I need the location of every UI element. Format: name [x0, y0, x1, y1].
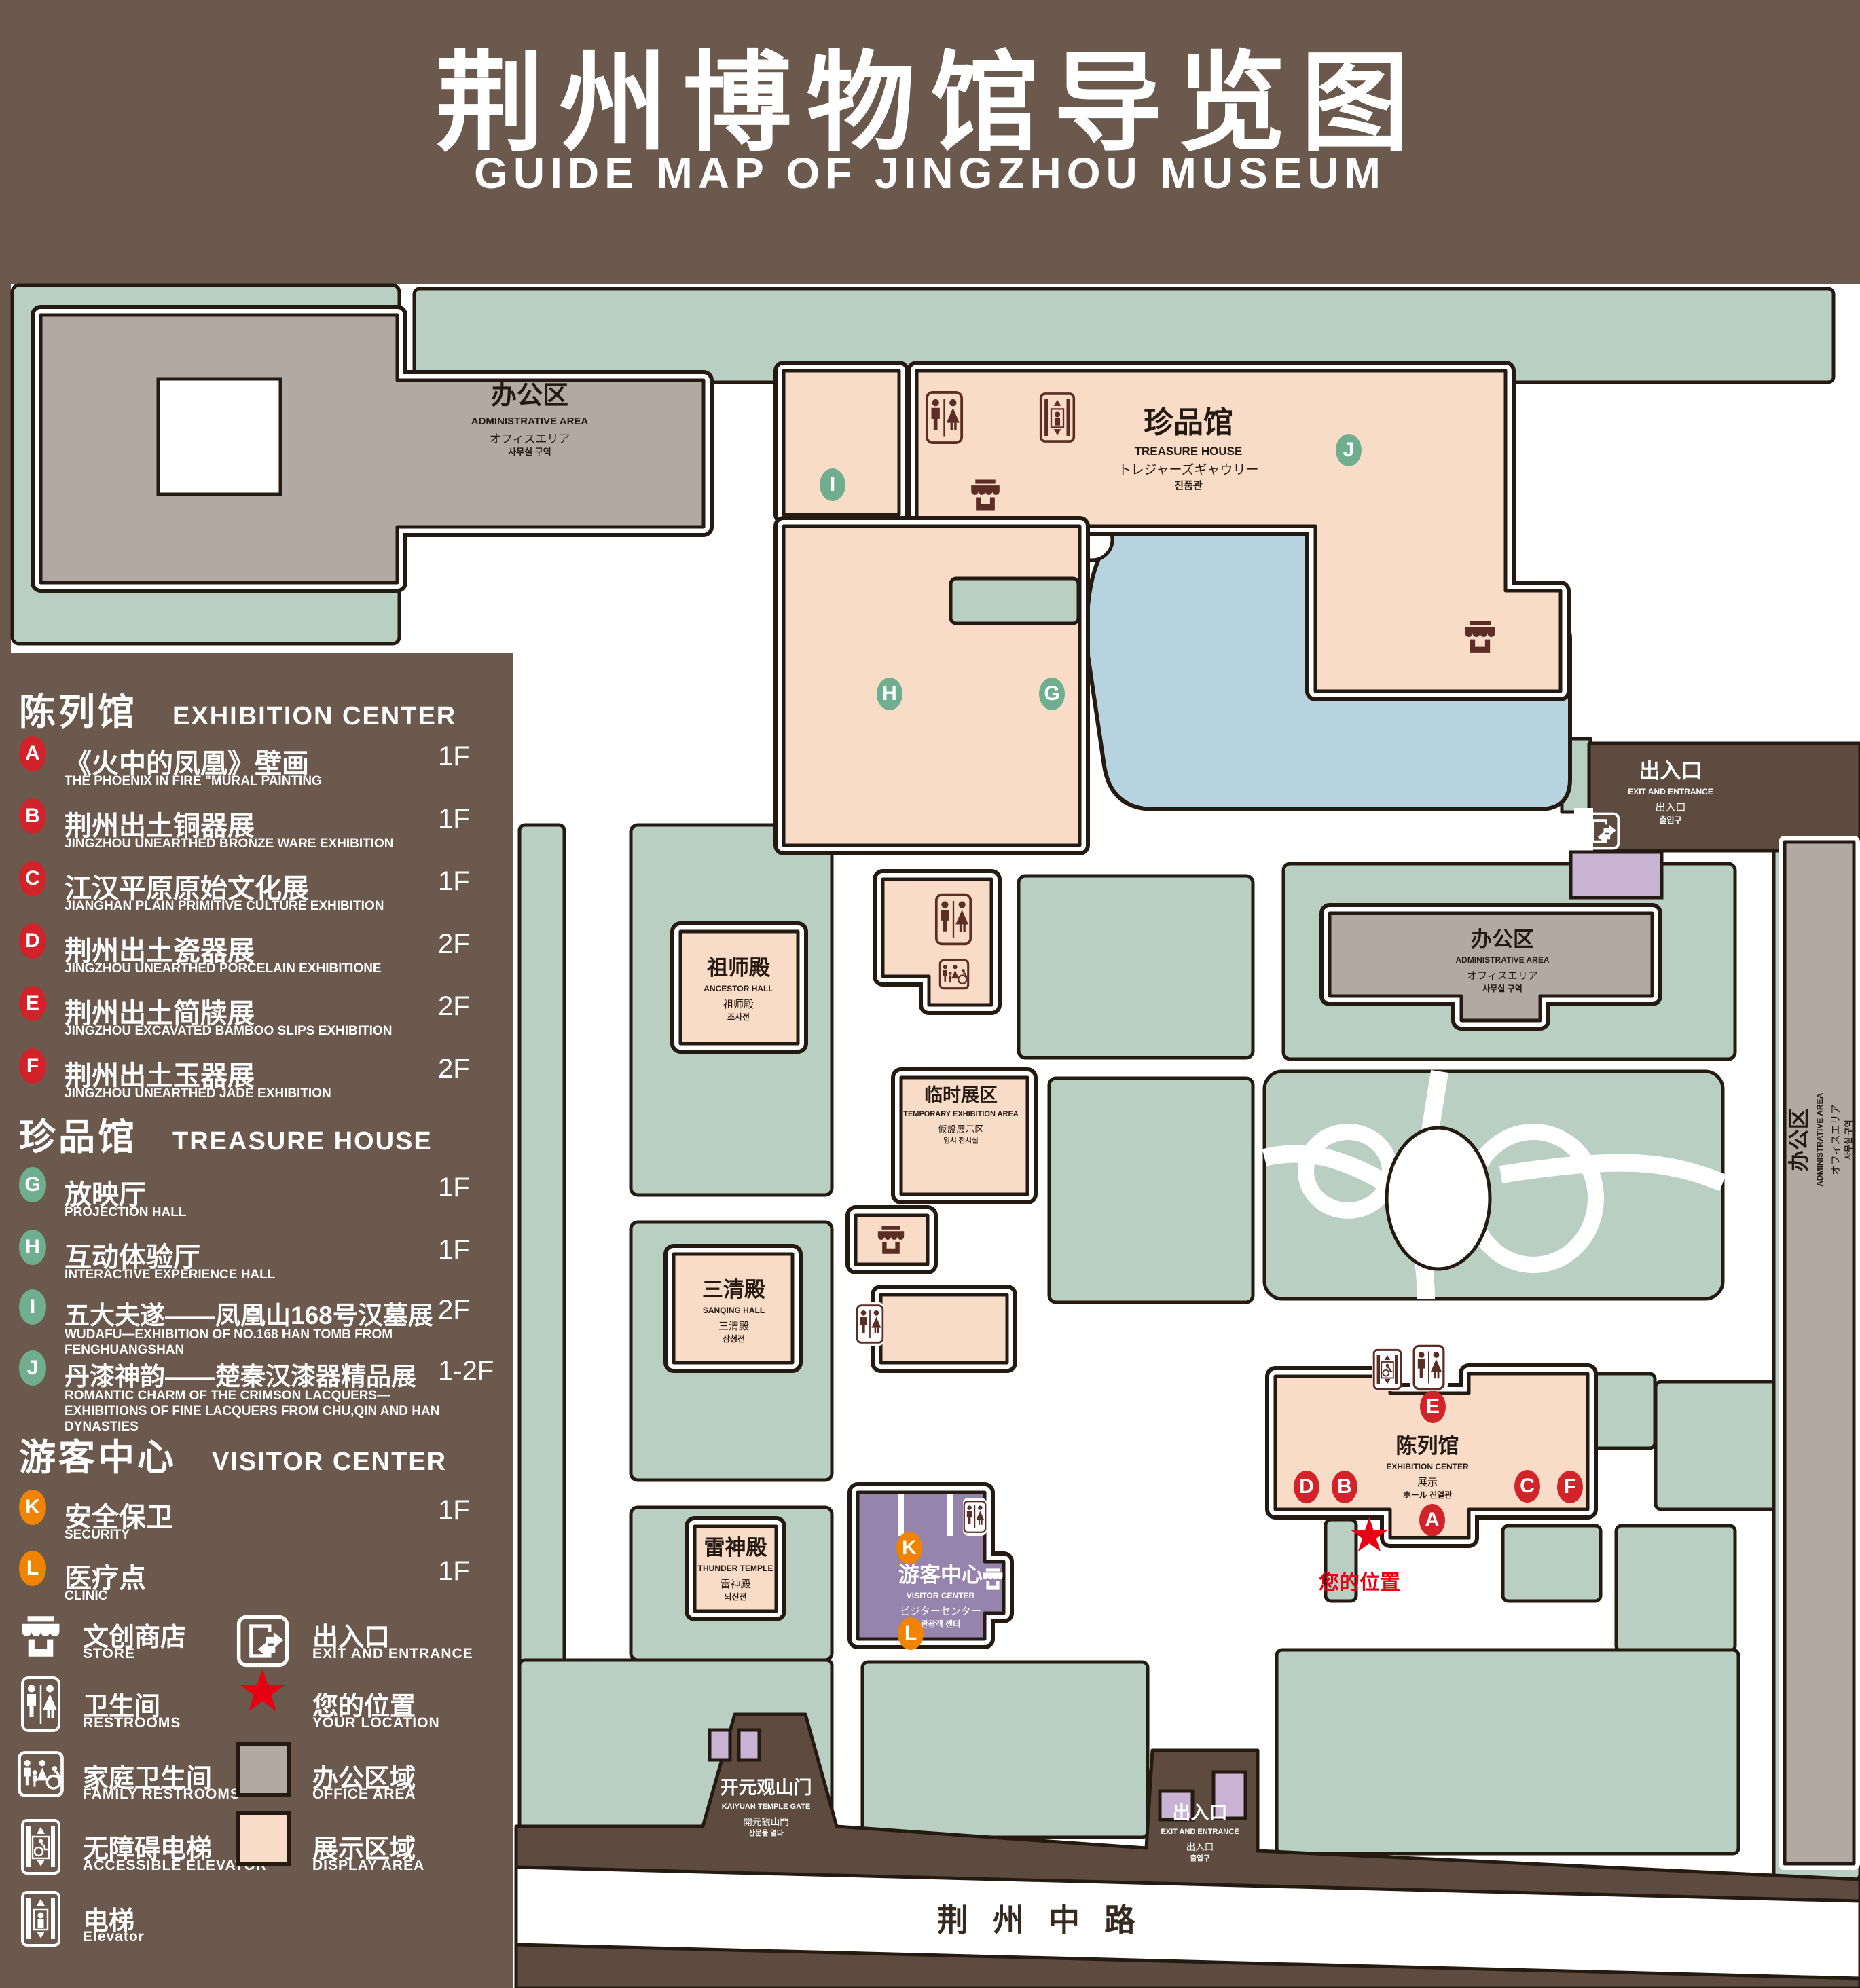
office-area-label-en: OFFICE AREA [312, 1786, 416, 1803]
legend-item-c: C 江汉平原原始文化展 1F JIANGHAN PLAIN PRIMITIVE … [19, 866, 508, 925]
elevator-icon [1039, 384, 1076, 452]
restrooms-icon [934, 892, 972, 946]
marker-b: B [19, 798, 46, 834]
family-restrooms-icon [938, 955, 970, 994]
legend-item-l: L 医疗点 1F CLINIC [19, 1556, 508, 1615]
legend-item-a: A 《火中的凤凰》壁画 1F THE PHOENIX IN FIRE "MURA… [19, 741, 508, 800]
marker-e: E [19, 986, 46, 1021]
section-title-en: VISITOR CENTER [212, 1448, 447, 1477]
section-title-zh: 陈列馆 [19, 682, 137, 735]
marker-j: J [19, 1350, 46, 1386]
family-restrooms-label-en: FAMILY RESTROOMS [83, 1786, 240, 1803]
elevator-label-en: Elevator [83, 1929, 145, 1945]
garden [1264, 1071, 1723, 1299]
label-treasure-house: 珍品馆TREASURE HOUSE トレジャーズギャウリー진품관 [1053, 406, 1324, 492]
section-title-en: TREASURE HOUSE [172, 1127, 433, 1156]
legend-item-e: E 荆州出土简牍展 2F JINGZHOU EXCAVATED BAMBOO S… [19, 991, 508, 1050]
store-icon [17, 1615, 65, 1658]
legend-item-f: F 荆州出土玉器展 2F JINGZHOU UNEARTHED JADE EXH… [19, 1054, 508, 1112]
map-marker-b: B [1332, 1471, 1357, 1503]
admin-building-right [1785, 842, 1854, 1864]
legend-item-j: J 丹漆神韵——楚秦汉漆器精品展 1-2F ROMANTIC CHARM OF … [19, 1356, 508, 1414]
label-kaiyuan-gate: 开元观山门KAIYUAN TEMPLE GATE 開元観山門산문을 열다 [679, 1778, 853, 1837]
marker-c: C [19, 861, 46, 896]
guide-map-page: 荆州博物馆导览图 GUIDE MAP OF JINGZHOU MUSEUM 陈列… [0, 0, 1860, 1988]
display-area-swatch [236, 1811, 291, 1866]
marker-a: A [19, 736, 46, 771]
legend-item-b: B 荆州出土铜器展 1F JINGZHOU UNEARTHED BRONZE W… [19, 804, 508, 862]
map-marker-a: A [1419, 1504, 1445, 1536]
right-entrance-plaza [1571, 852, 1662, 898]
accessible-elevator-icon [1372, 1348, 1402, 1391]
south-annex-building [881, 1295, 1007, 1363]
map-marker-i: I [820, 468, 845, 501]
accessible-elevator-icon [19, 1818, 62, 1875]
map-marker-f: F [1557, 1471, 1583, 1503]
office-area-swatch [236, 1742, 291, 1797]
legend-section-treasure-house: 珍品馆 TREASURE HOUSE [19, 1107, 433, 1160]
page-subtitle: GUIDE MAP OF JINGZHOU MUSEUM [0, 148, 1860, 198]
legend-section-visitor-center: 游客中心 VISITOR CENTER [19, 1427, 447, 1481]
map-marker-l: L [898, 1617, 924, 1650]
marker-h: H [19, 1230, 46, 1265]
label-admin-center: 办公区ADMINISTRATIVE AREA オフィスエリア사무실 구역 [1379, 927, 1626, 993]
map-marker-g: G [1039, 678, 1065, 710]
marker-d: D [19, 923, 46, 959]
marker-i: I [19, 1289, 46, 1325]
your-location-star: ★ [1348, 1511, 1391, 1559]
marker-l: L [19, 1551, 46, 1586]
map-marker-k: K [896, 1532, 922, 1564]
display-area-label-en: DISPLAY AREA [312, 1858, 424, 1874]
map-marker-h: H [877, 678, 902, 710]
section-title-en: EXHIBITION CENTER [172, 702, 456, 731]
map-marker-c: C [1514, 1470, 1540, 1503]
restrooms-icon [1410, 1344, 1448, 1391]
map-marker-d: D [1294, 1471, 1319, 1503]
label-ancestor-hall: 祖师殿ANCESTOR HALL 祖师殿조사전 [669, 956, 808, 1022]
store-icon [968, 474, 1003, 516]
legend-section-exhibition-center: 陈列馆 EXHIBITION CENTER [19, 682, 456, 735]
exit-icon [1582, 812, 1620, 850]
label-temporary-exhibition: 临时展区TEMPORARY EXHIBITION AREA 仮設展示区임시 전시… [873, 1085, 1049, 1145]
section-title-zh: 游客中心 [19, 1427, 177, 1481]
legend-item-g: G 放映厅 1F PROJECTION HALL [19, 1173, 508, 1231]
store-icon [875, 1221, 907, 1259]
marker-g: G [19, 1167, 46, 1202]
label-thunder-temple: 雷神殿THUNDER TEMPLE 雷神殿뇌신전 [668, 1536, 803, 1602]
legend-item-i: I 五大夫遂——凤凰山168号汉墓展 2F WUDAFU—EXHIBITION … [19, 1295, 508, 1353]
restrooms-label-en: RESTROOMS [83, 1715, 181, 1731]
marker-f: F [19, 1048, 46, 1084]
legend-item-k: K 安全保卫 1F SECURITY [19, 1495, 508, 1553]
section-title-zh: 珍品馆 [19, 1107, 137, 1160]
location-star-icon: ★ [236, 1662, 289, 1720]
pond-shape [1387, 1128, 1490, 1269]
restrooms-icon [856, 1302, 884, 1346]
your-location-text: 您的位置 [1319, 1566, 1400, 1596]
store-icon [1461, 614, 1499, 659]
label-exhibition-center: 陈列馆EXHIBITION CENTER 展示ホール 진열관 [1339, 1434, 1516, 1500]
exit-label-en: EXIT AND ENTRANCE [312, 1646, 473, 1662]
restrooms-icon [19, 1676, 62, 1733]
label-admin-top-left: 办公区ADMINISTRATIVE AREA オフィスエリア사무실 구역 [380, 382, 679, 458]
legend-item-h: H 互动体验厅 1F INTERACTIVE EXPERIENCE HALL [19, 1235, 508, 1293]
family-restrooms-icon [17, 1750, 65, 1798]
store-label-en: STORE [83, 1646, 135, 1662]
restrooms-icon [925, 384, 964, 452]
elevator-icon [19, 1890, 62, 1947]
your-location-label-en: YOUR LOCATION [312, 1715, 440, 1731]
map-marker-e: E [1420, 1391, 1446, 1423]
label-exit-bottom: 出入口EXIT AND ENTRANCE 出入口출입구 [1130, 1803, 1270, 1862]
store-icon [981, 1559, 1005, 1600]
map-marker-j: J [1336, 434, 1362, 466]
marker-k: K [19, 1490, 46, 1525]
label-admin-right: 办公区ADMINISTRATIVE AREA オフィスエリア사무실 구역 [1787, 1036, 1853, 1243]
label-sanqing-hall: 三清殿SANQING HALL 三清殿삼청전 [664, 1278, 803, 1344]
road-name: 荆州中路 [937, 1896, 1160, 1940]
legend-item-d: D 荆州出土瓷器展 2F JINGZHOU UNEARTHED PORCELAI… [19, 929, 508, 987]
restrooms-icon [963, 1498, 987, 1536]
